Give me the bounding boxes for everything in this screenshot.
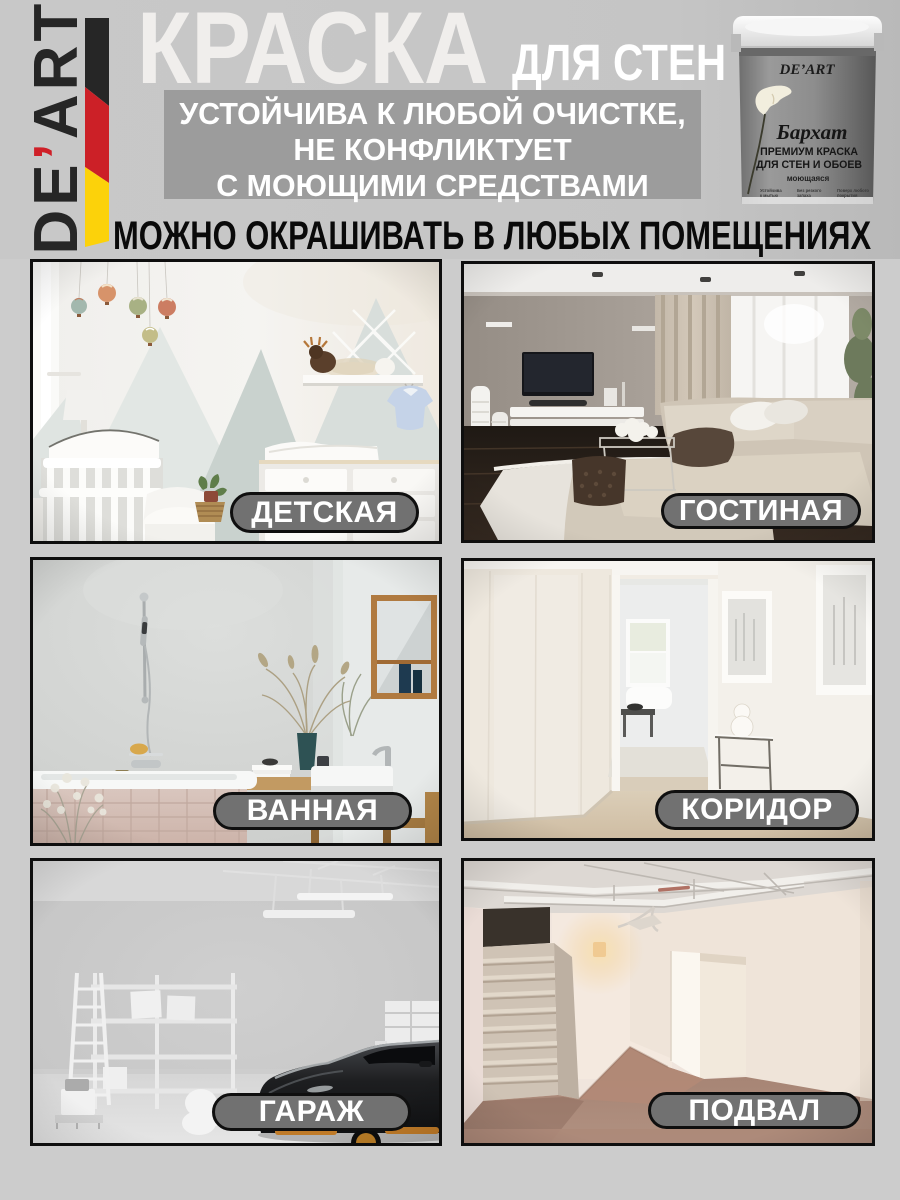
svg-text:ПРЕМИУМ КРАСКА: ПРЕМИУМ КРАСКА (760, 146, 858, 158)
svg-text:покрытия: покрытия (837, 193, 858, 198)
svg-text:Бархат: Бархат (776, 120, 848, 144)
svg-text:моющаяся: моющаяся (787, 174, 830, 183)
svg-text:ДЛЯ СТЕН И ОБОЕВ: ДЛЯ СТЕН И ОБОЕВ (756, 159, 862, 171)
svg-text:к мытью: к мытью (760, 193, 779, 198)
svg-text:запаха: запаха (797, 193, 812, 198)
svg-text:DE’ART: DE’ART (778, 62, 835, 78)
